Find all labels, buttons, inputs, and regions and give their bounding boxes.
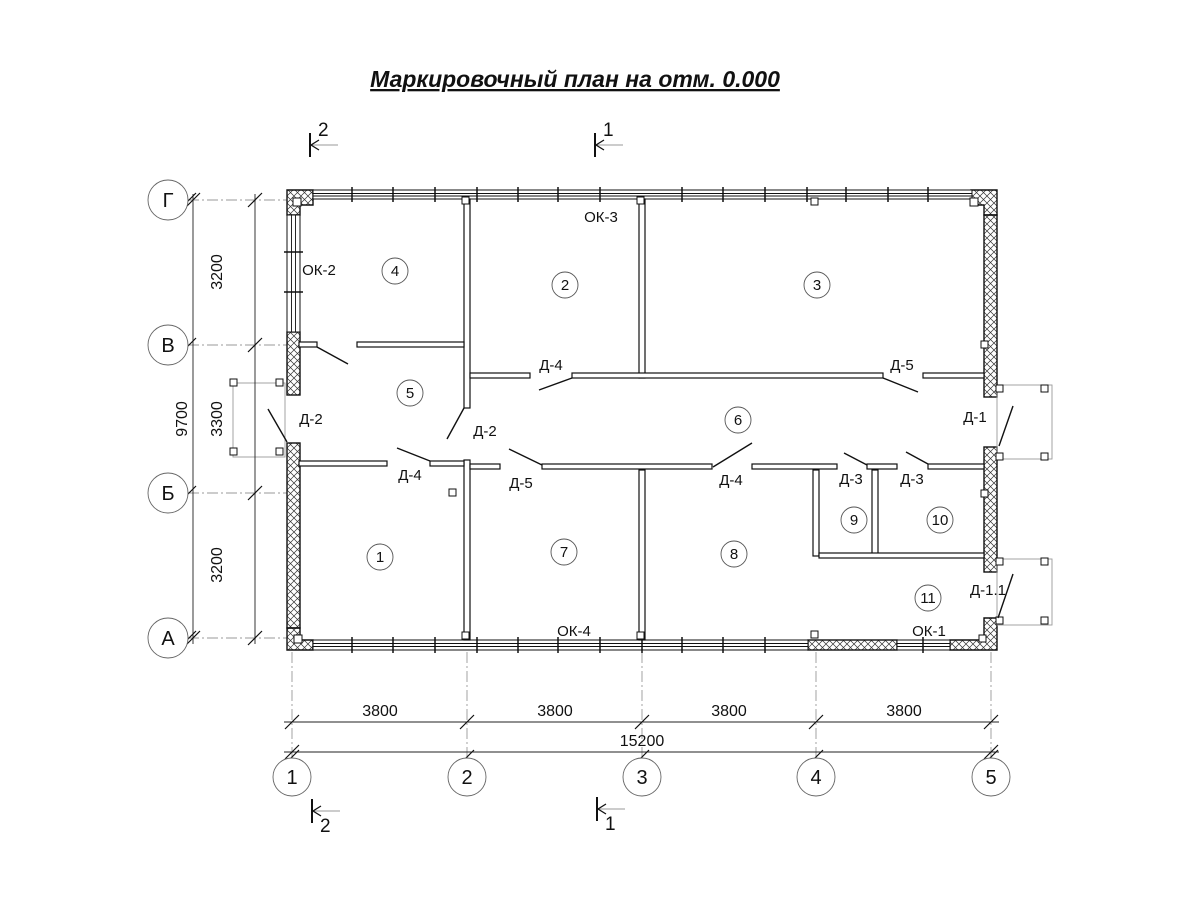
wall-corridor-top-c (923, 373, 984, 378)
wall-corridor-bottom-c (752, 464, 837, 469)
room-number-4: 4 (391, 263, 399, 280)
wall-room1-top-b (430, 461, 464, 466)
drawing-sheet: Маркировочный план на отм. 0.000 (0, 0, 1200, 900)
axis-col-2: 2 (461, 767, 472, 789)
section-marker-label: 1 (603, 120, 614, 141)
wall-axis3-lower (639, 470, 645, 640)
door-leaf-d4-top (539, 378, 572, 390)
wall-corridor-top-a (470, 373, 530, 378)
wall-corridor-bottom-e (928, 464, 984, 469)
room-number-8: 8 (730, 546, 738, 563)
wall-room11-top (819, 553, 984, 558)
dim-col-span-4: 3800 (886, 703, 922, 720)
door-label-d2-inner: Д-2 (473, 423, 497, 440)
axis-row-a: А (161, 628, 175, 650)
room-number-3: 3 (813, 277, 821, 294)
room-number-9: 9 (850, 512, 858, 529)
dim-col-span-3: 3800 (711, 703, 747, 720)
door-label-d3-b: Д-3 (900, 471, 924, 488)
axis-grid-lines (188, 200, 991, 758)
wall-right-upper (984, 215, 997, 397)
room-number-6: 6 (734, 412, 742, 429)
wall-rowB-stub (299, 342, 317, 347)
door-label-d4-top: Д-4 (539, 357, 563, 374)
wall-corner-bottom-right (950, 618, 997, 650)
door-label-d4-room1: Д-4 (398, 467, 422, 484)
dim-row-span-3: 3200 (209, 547, 226, 583)
window-label-ok2: ОК-2 (302, 262, 336, 279)
door-leaf-d2-inner (447, 408, 464, 439)
dim-col-span-2: 3800 (537, 703, 573, 720)
wall-bottom-solid (808, 640, 897, 650)
door-leaf-d3-b (906, 452, 928, 464)
wall-left-mid (287, 332, 300, 395)
porch-right-upper-outline (997, 385, 1052, 459)
section-marker-bottom-1: 1 (597, 797, 625, 835)
door-leaf-d1 (999, 406, 1013, 446)
dim-col-span-1: 3800 (362, 703, 398, 720)
porch-entry-outline (233, 383, 285, 457)
room-number-1: 1 (376, 549, 384, 566)
room-number-10: 10 (932, 512, 949, 529)
room-number-7: 7 (560, 544, 568, 561)
wall-room9-10 (872, 470, 878, 556)
axis-row-g: Г (163, 190, 174, 212)
axis-circles: Г В Б А 1 2 3 4 5 (148, 180, 1010, 796)
section-marker-top-2: 2 (310, 120, 338, 157)
dim-row-total: 9700 (174, 401, 191, 437)
door-label-d3-a: Д-3 (839, 471, 863, 488)
room-number-11: 11 (920, 590, 936, 607)
wall-corridor-bottom-d (867, 464, 897, 469)
door-label-d5-mid: Д-5 (509, 475, 533, 492)
wall-axis2-lower (464, 460, 470, 640)
floor-plan-drawing: Маркировочный план на отм. 0.000 (0, 0, 1200, 900)
axis-col-1: 1 (286, 767, 297, 789)
wall-axis4 (813, 470, 819, 556)
axis-row-b: Б (161, 483, 174, 505)
wall-rowB (357, 342, 464, 347)
wall-right-mid (984, 447, 997, 572)
wall-left-lower (287, 443, 300, 628)
wall-corridor-bottom-a (470, 464, 500, 469)
wall-axis3-upper (639, 199, 645, 378)
room-number-5: 5 (406, 385, 414, 402)
door-leaf-d4-room1 (397, 448, 430, 461)
door-leaf-d5-top (883, 378, 918, 392)
room-number-2: 2 (561, 277, 569, 294)
window-label-ok4: ОК-4 (557, 623, 591, 640)
door-label-d5-top: Д-5 (890, 357, 914, 374)
window-label-ok3: ОК-3 (584, 209, 618, 226)
axis-col-5: 5 (985, 767, 996, 789)
door-leaf-rowB (317, 347, 348, 364)
section-marker-label: 2 (318, 120, 329, 141)
wall-corridor-top-b (572, 373, 883, 378)
axis-row-v: В (161, 335, 174, 357)
wall-corridor-bottom-b (542, 464, 712, 469)
dim-row-span-1: 3200 (209, 254, 226, 290)
axis-col-4: 4 (810, 767, 821, 789)
axis-col-3: 3 (636, 767, 647, 789)
section-marker-bottom-2: 2 (312, 799, 340, 837)
wall-room1-top-a (299, 461, 387, 466)
window-label-ok1: ОК-1 (912, 623, 946, 640)
door-label-d4-mid: Д-4 (719, 472, 743, 489)
page-title: Маркировочный план на отм. 0.000 (370, 66, 780, 92)
door-label-d1: Д-1 (963, 409, 987, 426)
door-label-d2-entry: Д-2 (299, 411, 323, 428)
door-leaf-d4-mid (713, 443, 752, 467)
section-marker-label: 2 (320, 816, 331, 837)
door-leaf-d5-mid (509, 449, 542, 465)
section-marker-top-1: 1 (595, 120, 623, 157)
section-marker-label: 1 (605, 814, 616, 835)
window-bands (284, 187, 972, 653)
door-leaf-d3-a (844, 453, 867, 465)
dimension-texts: 3200 3300 3200 9700 3800 3800 3800 3800 … (174, 254, 922, 750)
dim-col-total: 15200 (620, 733, 665, 750)
dim-row-span-2: 3300 (209, 401, 226, 437)
wall-axis2-upper (464, 199, 470, 408)
door-leaf-d2-entry (268, 409, 287, 442)
door-label-d1-1: Д-1.1 (970, 582, 1006, 599)
